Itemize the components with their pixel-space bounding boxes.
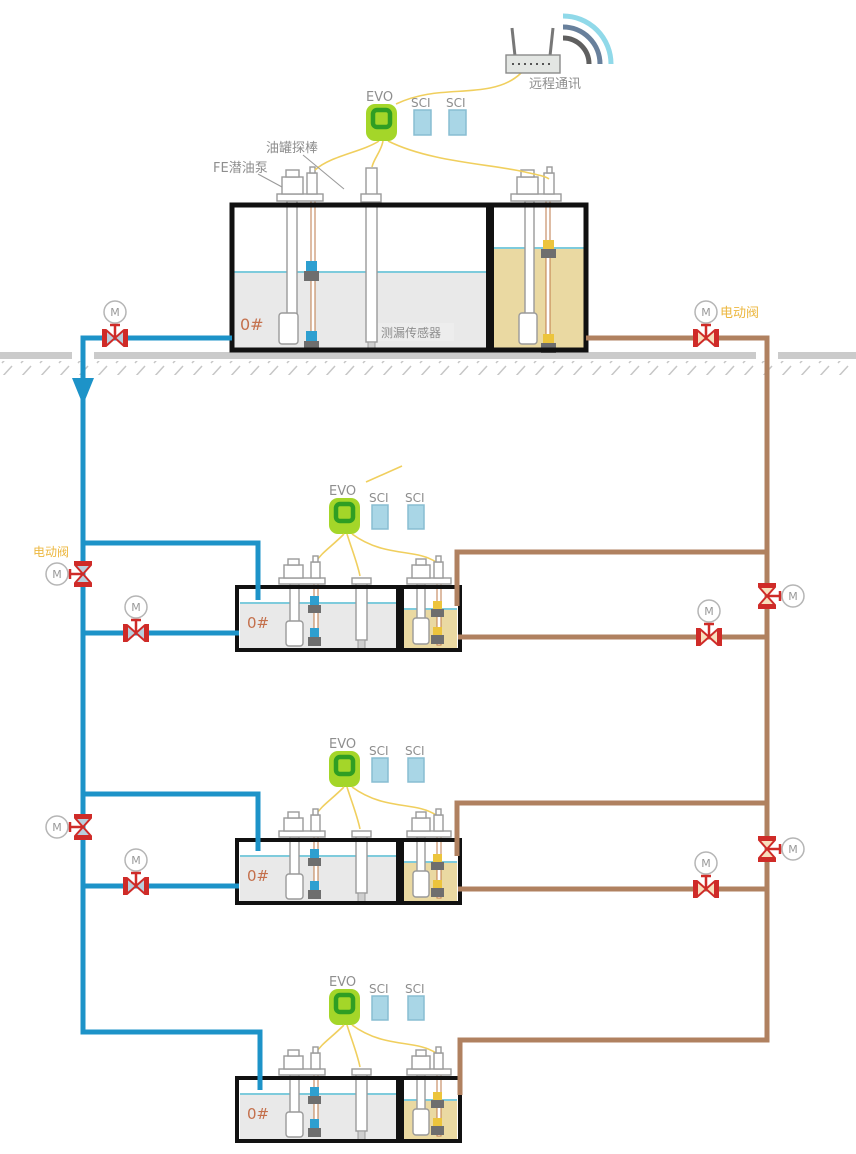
ground-line (94, 352, 756, 359)
diagram: M M M (0, 0, 856, 1154)
pump-tube (287, 201, 297, 314)
diesel-pipe-branch (83, 543, 258, 600)
electric-valve-label: 电动阀 (33, 545, 69, 559)
fuel-grade-label: 0# (240, 315, 264, 334)
schematic-svg: M M M (0, 0, 856, 1154)
leak-sensor-label: 测漏传感器 (381, 325, 441, 340)
submersible-pump (279, 313, 298, 344)
ground-hatching (0, 361, 856, 375)
gasoline-pipe-branch (457, 552, 767, 606)
leak-sensor-wire (372, 141, 383, 167)
gasoline-fluid (494, 248, 584, 348)
probe-head-cap (547, 167, 552, 173)
remote-comm-label: 远程通讯 (529, 77, 581, 92)
wifi-arc-inner (563, 38, 589, 64)
float-switch (304, 271, 319, 281)
sci-module (414, 110, 431, 135)
tank-probe-label: 油罐探棒 (266, 141, 318, 156)
tank-probe-rod (546, 201, 550, 350)
pump-flange (511, 194, 561, 201)
tank-divider (486, 205, 494, 350)
pump-tube (525, 201, 534, 315)
pump-head-cap (286, 170, 299, 177)
float-switch (306, 261, 317, 271)
evo-label: EVO (366, 90, 393, 105)
surface-tank-station: 0# 测漏传感器 (232, 167, 586, 353)
gasoline-pipe-main (460, 338, 767, 1095)
sci-label: SCI (411, 96, 431, 110)
float-switch (306, 331, 317, 341)
pump-flange (277, 194, 323, 201)
leak-sensor-collar (361, 194, 381, 202)
sci-module (449, 110, 466, 135)
antenna (550, 28, 553, 56)
probe-head (544, 173, 554, 194)
remote-comm-router: 远程通讯 (506, 16, 611, 92)
station-4 (237, 975, 460, 1142)
pump-head (282, 177, 303, 194)
station-2 (237, 484, 460, 651)
diesel-pipe-main (83, 338, 260, 1090)
gasoline-pipe-branch (457, 803, 767, 856)
submersible-pump (519, 313, 537, 344)
ground-line (0, 352, 72, 359)
float-switch (543, 334, 554, 343)
float-switch (541, 249, 556, 258)
probe-head (307, 173, 317, 194)
probe-head-cap (310, 167, 315, 173)
float-switch (543, 240, 554, 249)
flow-arrow (72, 378, 94, 405)
electric-valve-label: 电动阀 (720, 306, 759, 321)
pump-head (517, 177, 538, 194)
diesel-pipe-branch (83, 794, 258, 851)
router-body (506, 55, 560, 73)
sci-label: SCI (446, 96, 466, 110)
ground-line (778, 352, 856, 359)
station-3 (237, 737, 460, 904)
stray-wire (366, 466, 402, 482)
fe-pump-label: FE潜油泵 (213, 161, 268, 176)
antenna (512, 28, 515, 56)
leader-line (258, 174, 282, 187)
probe-wire (315, 141, 379, 170)
surface-console: EVO SCI SCI 油罐探棒 FE潜油泵 (213, 73, 549, 189)
